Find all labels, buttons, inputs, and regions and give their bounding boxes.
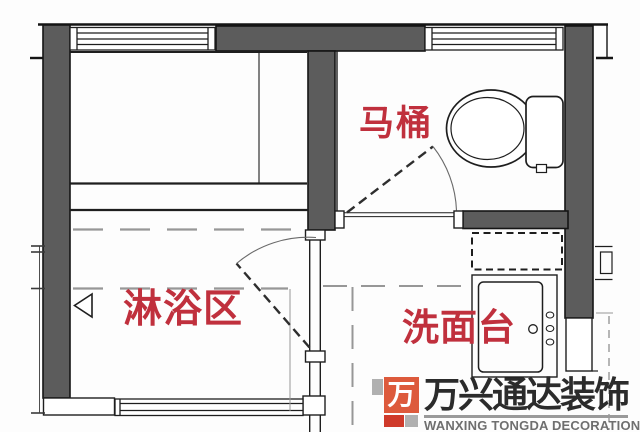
logo-mark: 万 bbox=[370, 376, 420, 428]
vanity-label: 洗面台 bbox=[402, 309, 516, 346]
wall-center-pillar bbox=[308, 51, 335, 230]
toilet-door-jamb-right bbox=[454, 211, 463, 228]
logo-text-block: 万兴通达装饰 WANXING TONGDA DECORATION bbox=[424, 376, 628, 432]
wall-right bbox=[565, 26, 593, 318]
floor-plan-drawing bbox=[0, 0, 640, 432]
toilet-label: 马桶 bbox=[359, 106, 433, 141]
logo-square-red bbox=[384, 415, 404, 427]
logo-glyph-tile: 万 bbox=[384, 377, 419, 413]
pipe-bracket bbox=[595, 247, 613, 280]
cabinet-knob bbox=[529, 325, 538, 334]
logo-square-gray-top bbox=[372, 379, 383, 395]
window-top-right bbox=[425, 28, 563, 51]
toilet-door-leaf bbox=[347, 147, 433, 213]
logo-square-gray-bottom bbox=[405, 415, 418, 427]
shower-label: 淋浴区 bbox=[123, 290, 243, 329]
window-bottom bbox=[115, 399, 303, 416]
overhead-cabinet-dashed bbox=[472, 233, 562, 270]
toilet-tank bbox=[526, 97, 563, 168]
company-name-en: WANXING TONGDA DECORATION bbox=[424, 419, 628, 432]
wall-top-center bbox=[216, 26, 425, 51]
toilet-door-jamb-left bbox=[335, 211, 344, 228]
toilet-fixture bbox=[447, 90, 564, 173]
wall-left bbox=[43, 25, 70, 398]
logo-glyph: 万 bbox=[387, 379, 415, 410]
bathroom-floor-plan: 马桶 淋浴区 洗面台 万 万兴通达装饰 WANXING TONGDA DECOR… bbox=[0, 0, 640, 432]
toilet-door-arc bbox=[433, 147, 457, 211]
shower-door-arc bbox=[237, 237, 317, 263]
watermark-logo: 万 万兴通达装饰 WANXING TONGDA DECORATION bbox=[370, 376, 628, 432]
wall-toilet-bottom bbox=[463, 211, 568, 229]
shower-head-symbol bbox=[75, 294, 93, 317]
window-top-left bbox=[70, 28, 215, 51]
company-name-cn: 万兴通达装饰 bbox=[424, 376, 628, 414]
shower-door-leaf bbox=[237, 264, 310, 348]
